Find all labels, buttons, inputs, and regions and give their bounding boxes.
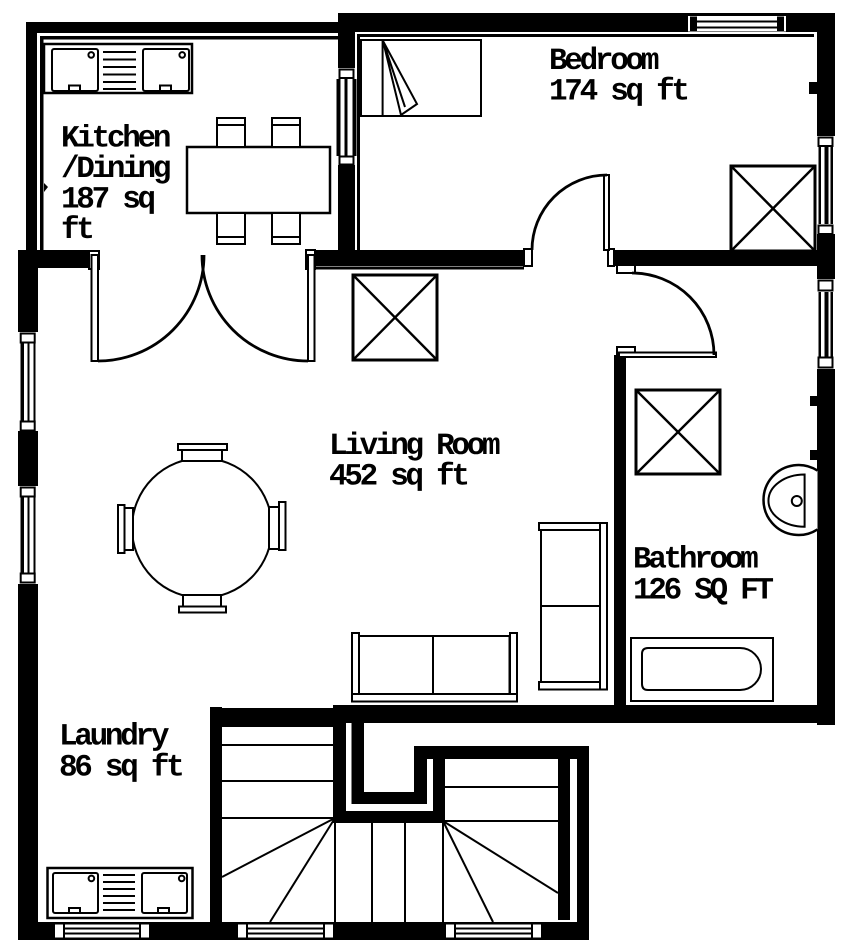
- svg-text:452 sq ft: 452 sq ft: [329, 460, 467, 495]
- svg-text:126 SQ FT: 126 SQ FT: [633, 574, 773, 609]
- svg-text:174 sq ft: 174 sq ft: [549, 74, 687, 109]
- svg-text:Bathroom: Bathroom: [633, 542, 758, 577]
- svg-text:Living Room: Living Room: [329, 429, 500, 464]
- svg-text:ft: ft: [61, 213, 92, 248]
- svg-text:86 sq ft: 86 sq ft: [59, 750, 182, 785]
